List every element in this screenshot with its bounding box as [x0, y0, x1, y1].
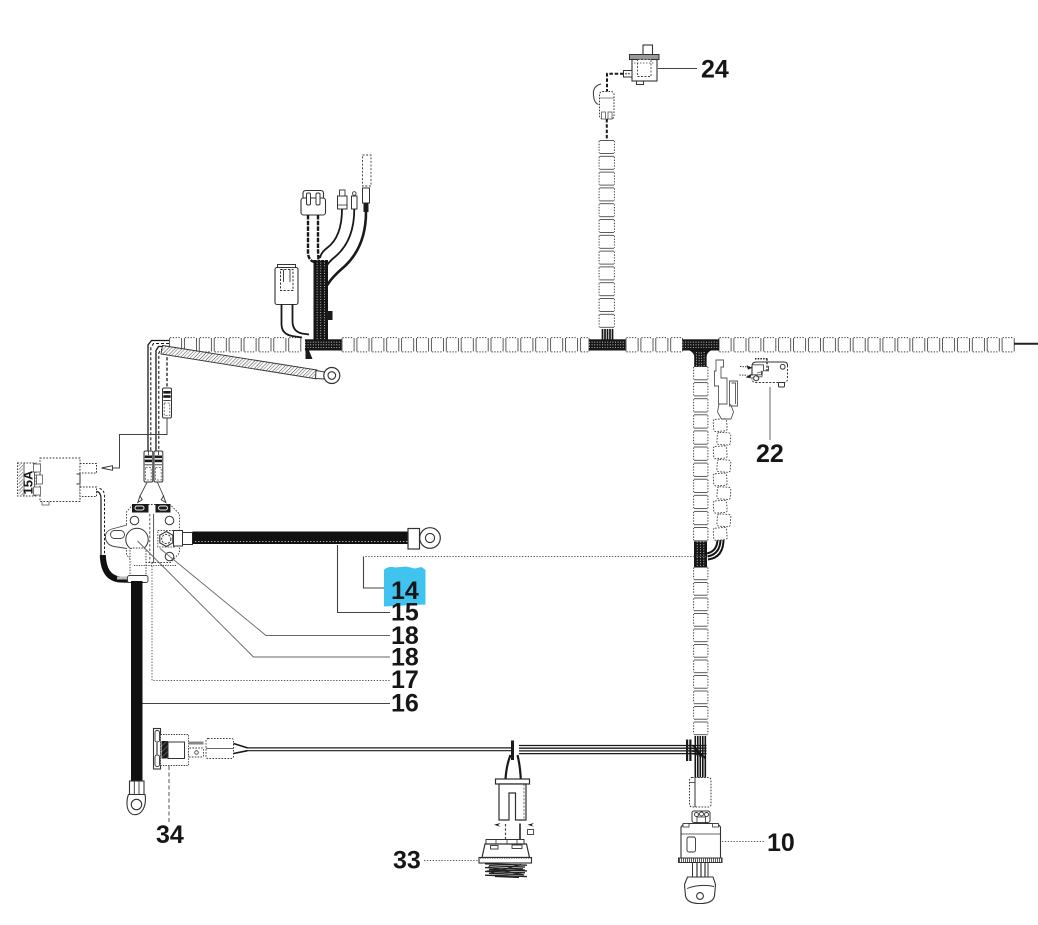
svg-text:34: 34 [156, 821, 184, 849]
svg-text:33: 33 [393, 847, 421, 875]
svg-text:16: 16 [391, 690, 419, 718]
svg-text:22: 22 [756, 440, 784, 468]
svg-text:24: 24 [701, 56, 729, 84]
svg-text:10: 10 [767, 829, 795, 857]
